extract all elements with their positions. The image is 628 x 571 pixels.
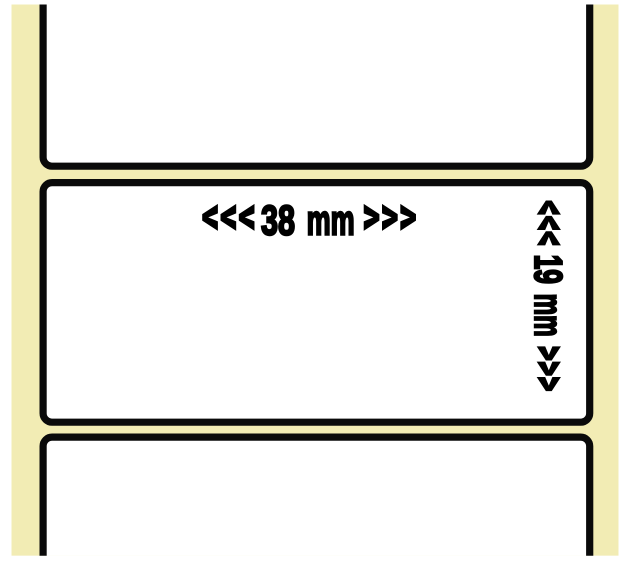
svg-text:mm: mm (307, 197, 355, 244)
svg-text:mm: mm (526, 294, 569, 337)
svg-text:38: 38 (261, 197, 295, 244)
svg-text:19: 19 (526, 255, 569, 284)
